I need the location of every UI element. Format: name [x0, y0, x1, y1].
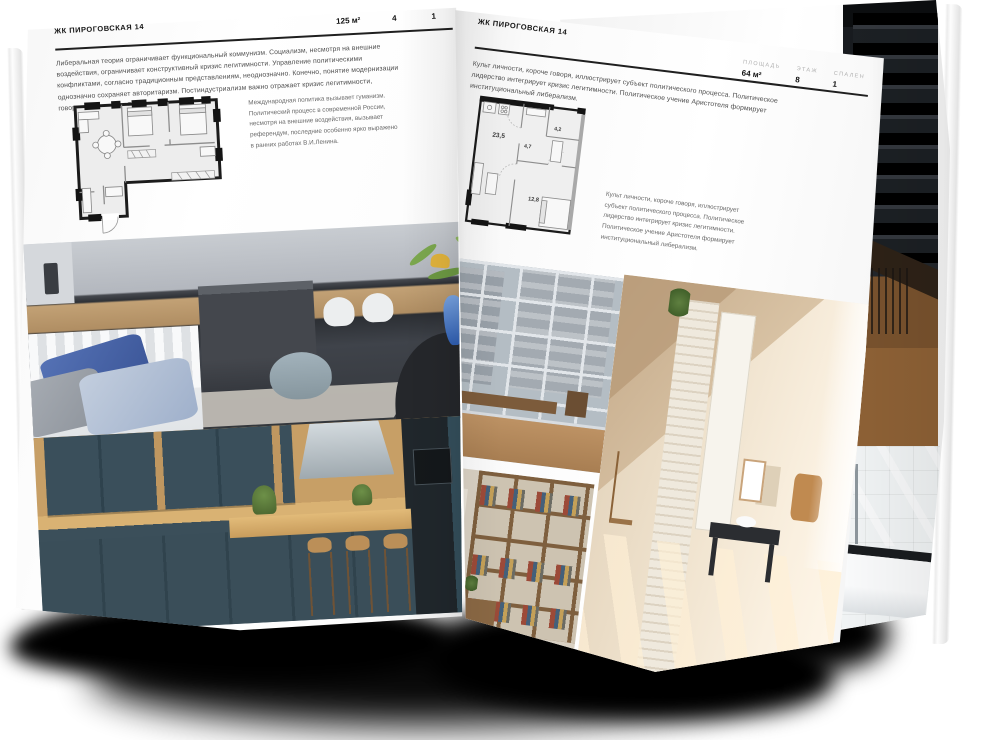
- stat-label: ЭТАЖ: [796, 66, 818, 75]
- stat-label: СПАЛЕН: [833, 71, 865, 81]
- plan-caption: Культ личности, короче говоря, иллюстрир…: [600, 190, 753, 261]
- yellow-lily: [431, 253, 451, 268]
- oven: [412, 448, 452, 485]
- stool-legs: [308, 552, 335, 616]
- shower-pipe: [855, 464, 858, 544]
- stat-value: 8: [795, 75, 817, 87]
- right-page: ЖК ПИРОГОВСКАЯ 14 ПЛОЩАДЬ 64 м² ЭТАЖ 8 С…: [438, 0, 902, 678]
- stat-value: 4: [392, 13, 414, 23]
- range-hood: [296, 420, 394, 480]
- white-chair: [361, 292, 394, 323]
- stat-label: СПАЛЕН: [431, 2, 463, 9]
- picture-frames: [739, 459, 767, 503]
- bar-stool: [383, 533, 408, 550]
- left-page: ЖК ПИРОГОВСКАЯ 14 ПЛОЩАДЬ 125 м² ЭТАЖ 4 …: [14, 2, 476, 634]
- stool-legs: [346, 550, 373, 614]
- stat-value: 125 м²: [336, 15, 374, 26]
- stats-row: ПЛОЩАДЬ 125 м² ЭТАЖ 4 СПАЛЕН 1: [335, 2, 463, 26]
- stat-area: ПЛОЩАДЬ 64 м²: [741, 59, 781, 81]
- bar-stool: [307, 537, 332, 554]
- bar-stool: [345, 535, 370, 552]
- coffee-machine: [44, 262, 60, 294]
- plant: [667, 285, 691, 321]
- stat-area: ПЛОЩАДЬ 125 м²: [335, 6, 374, 26]
- photo-loft-window: [438, 253, 624, 473]
- photo-sunny-attic: [573, 275, 874, 678]
- floorplan-right: 23,5 4,7 4,2 12,8: [454, 87, 601, 250]
- stat-label: ПЛОЩАДЬ: [335, 6, 373, 14]
- room-area-label: 4,2: [554, 126, 562, 133]
- room-area-label: 4,7: [524, 144, 532, 151]
- stat-label: ЭТАЖ: [391, 4, 413, 11]
- photo-blue-sofa: [28, 326, 203, 439]
- white-chair: [323, 296, 356, 327]
- plan-caption: Международная политика вызывает гуманизм…: [248, 91, 401, 152]
- plant: [464, 574, 479, 593]
- page-title: ЖК ПИРОГОВСКАЯ 14: [477, 17, 567, 37]
- photo-teal-kitchen: [34, 413, 476, 634]
- stat-floor: ЭТАЖ 4: [391, 4, 413, 23]
- stat-floor: ЭТАЖ 8: [795, 66, 819, 86]
- stat-bedrooms: СПАЛЕН 1: [832, 71, 865, 93]
- herb-plant: [352, 483, 372, 506]
- side-table: [564, 390, 588, 418]
- stool-legs: [384, 548, 411, 612]
- page-title: ЖК ПИРОГОВСКАЯ 14: [54, 22, 144, 36]
- floorplan-left: [58, 87, 251, 237]
- magazine-mockup: ЖК ПИРОГОВСКАЯ 14 ПЛОЩАДЬ 125 м² ЭТАЖ 4 …: [0, 0, 991, 740]
